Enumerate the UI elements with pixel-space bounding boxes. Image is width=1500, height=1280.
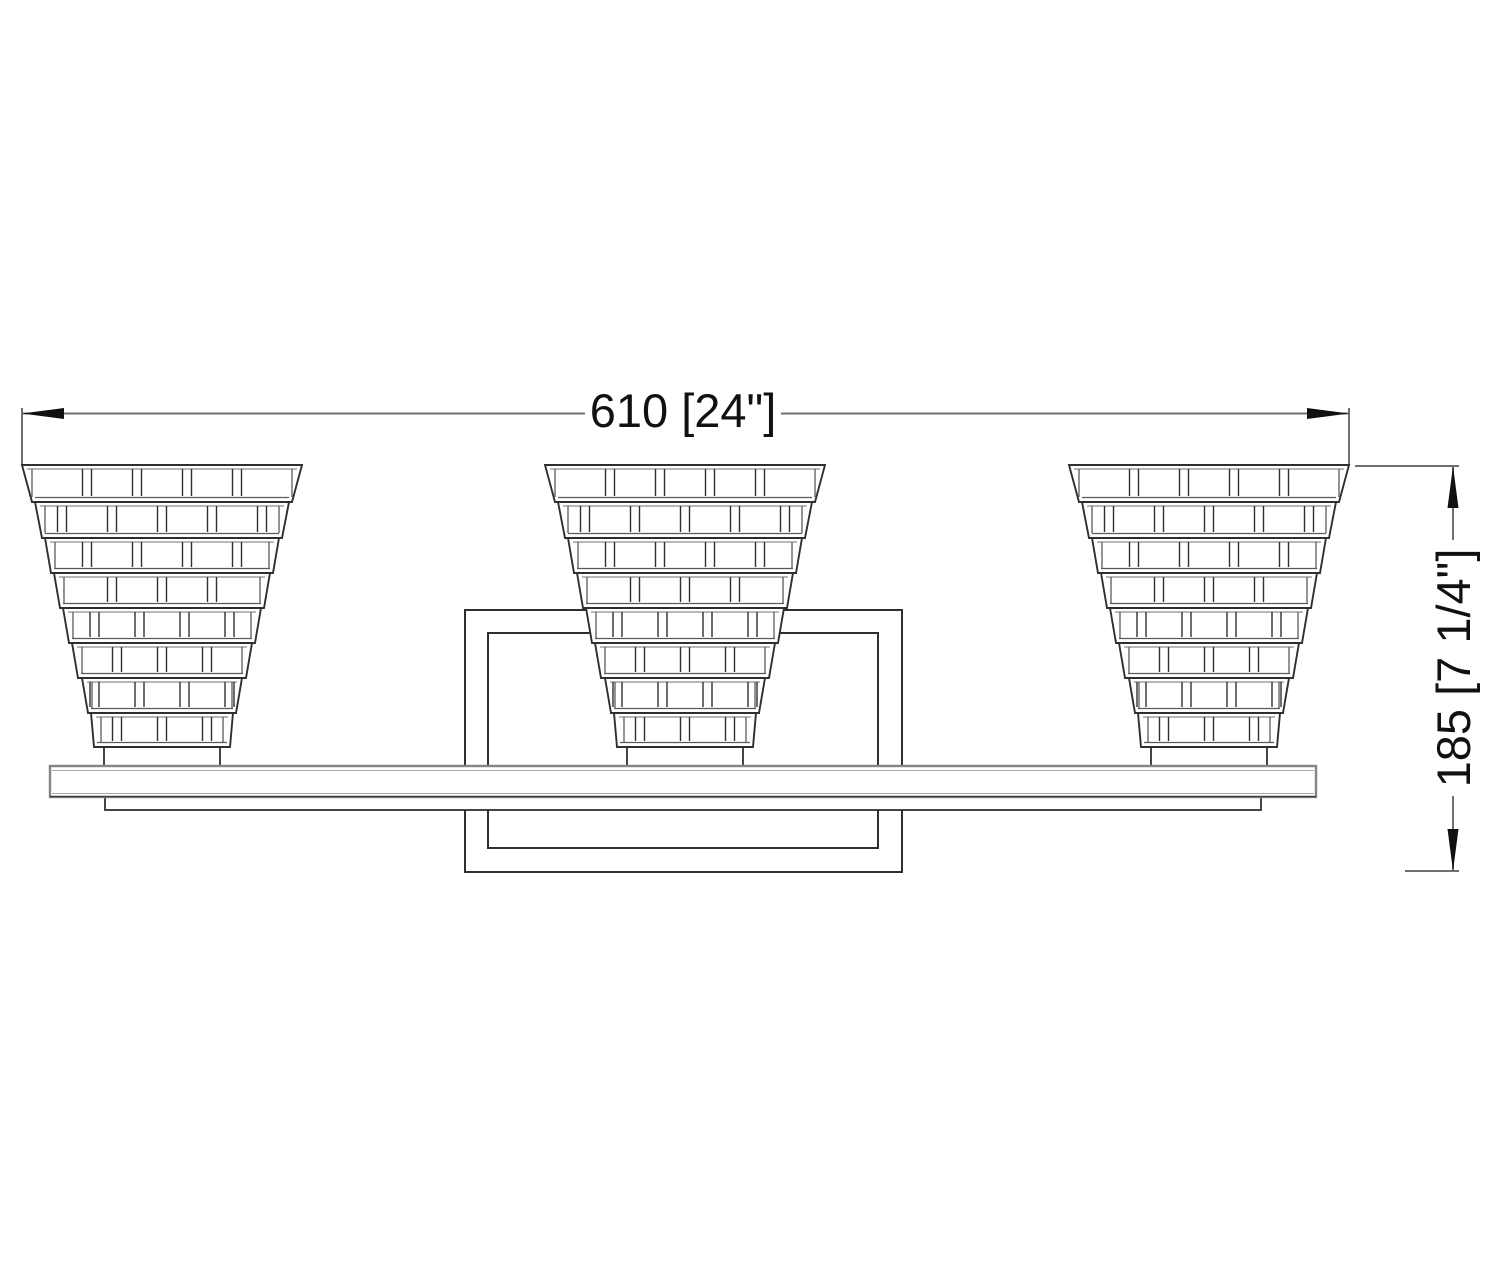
width-arrow-left-icon: [22, 408, 64, 419]
tier-outline: [45, 538, 279, 573]
shade-neck-left: [104, 747, 220, 766]
height-dimension-label: 185 [7 1/4"]: [1427, 549, 1480, 788]
tier-outline: [72, 643, 252, 678]
shade-right: [1069, 465, 1349, 747]
width-arrow-right-icon: [1307, 408, 1349, 419]
tier-outline: [1092, 538, 1326, 573]
shade-neck-right: [1151, 747, 1267, 766]
lower-trim-bar: [105, 797, 1261, 810]
tier-outline: [63, 608, 261, 643]
tier-outline: [1129, 678, 1289, 713]
mounting-bar: [50, 766, 1316, 810]
tier-outline: [82, 678, 242, 713]
dimension-height: 185 [7 1/4"]: [1355, 466, 1480, 871]
tier-outline: [595, 643, 775, 678]
tier-outline: [54, 573, 270, 608]
shade-neck-center: [627, 747, 743, 766]
tier-outline: [577, 573, 793, 608]
height-arrow-down-icon: [1448, 829, 1459, 871]
height-arrow-up-icon: [1448, 466, 1459, 508]
tier-outline: [568, 538, 802, 573]
width-dimension-label: 610 [24"]: [590, 384, 777, 437]
tier-outline: [558, 502, 812, 538]
technical-drawing: 610 [24"] 185 [7 1/4"]: [0, 0, 1500, 1280]
shade-center: [545, 465, 825, 747]
tier-outline: [1101, 573, 1317, 608]
tier-outline: [586, 608, 784, 643]
tier-outline: [545, 465, 825, 502]
tier-outline: [35, 502, 289, 538]
tier-outline: [1110, 608, 1308, 643]
fixture-layer: [22, 465, 1349, 872]
tier-outline: [22, 465, 302, 502]
tier-outline: [1069, 465, 1349, 502]
tier-outline: [1082, 502, 1336, 538]
tier-outline: [1119, 643, 1299, 678]
drawing-canvas: 610 [24"] 185 [7 1/4"]: [0, 0, 1500, 1280]
shade-left: [22, 465, 302, 747]
tier-outline: [605, 678, 765, 713]
lamp-necks: [104, 747, 1267, 766]
dimension-width: 610 [24"]: [22, 384, 1349, 464]
